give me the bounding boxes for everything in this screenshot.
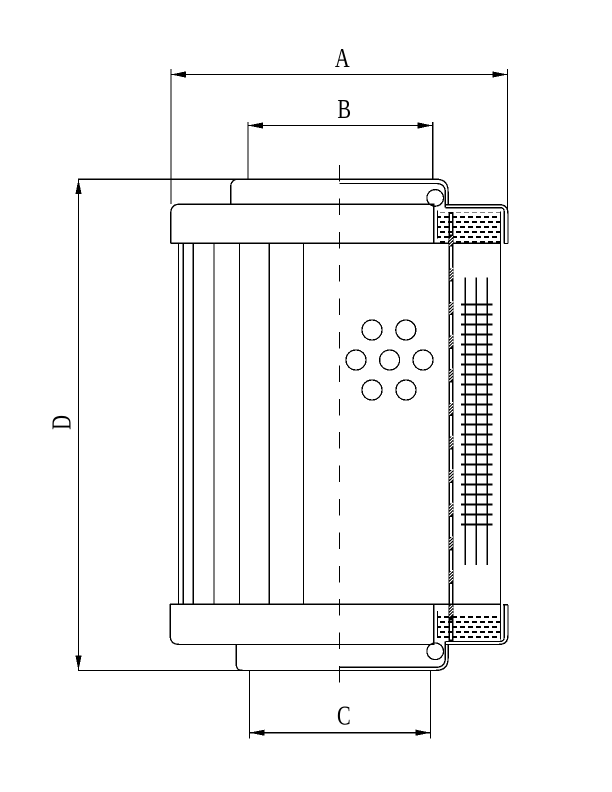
- svg-text:A: A: [335, 44, 350, 73]
- svg-text:B: B: [337, 96, 351, 125]
- svg-text:C: C: [337, 702, 351, 731]
- svg-text:D: D: [48, 415, 77, 430]
